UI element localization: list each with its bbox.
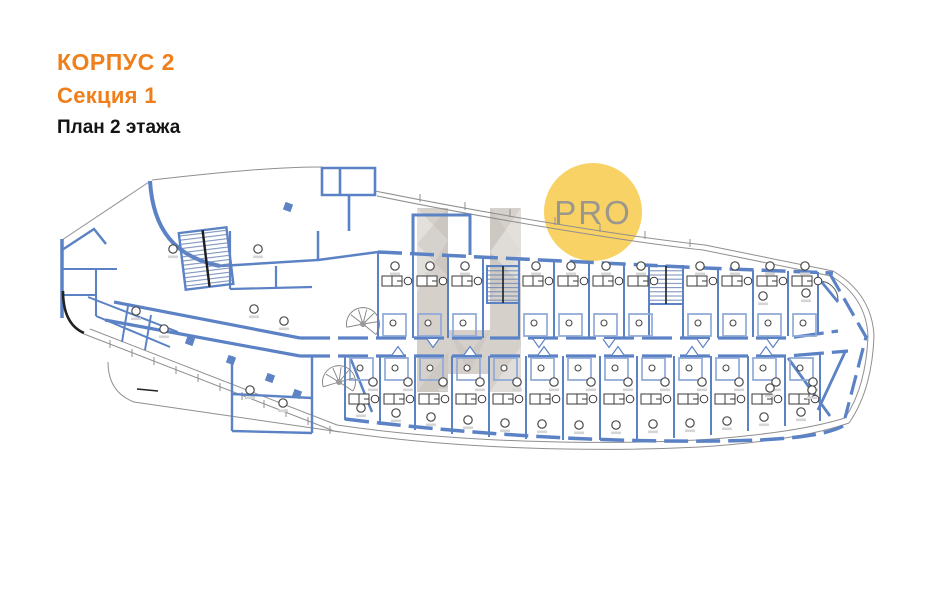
lower-bathrooms [350,358,813,380]
floor-plan-canvas: КОРПУС 2 Секция 1 План 2 этажа [0,0,941,600]
top-room [322,168,375,231]
scale-mark [137,389,158,391]
site-line [62,182,149,240]
south-exterior-wall [345,419,843,441]
stair-core-center [487,266,519,303]
pro-badge: PRO [544,163,642,261]
floor-plan-drawing: PRO [0,0,941,600]
entrance-wall [63,291,84,333]
stair-core-west [179,227,234,289]
